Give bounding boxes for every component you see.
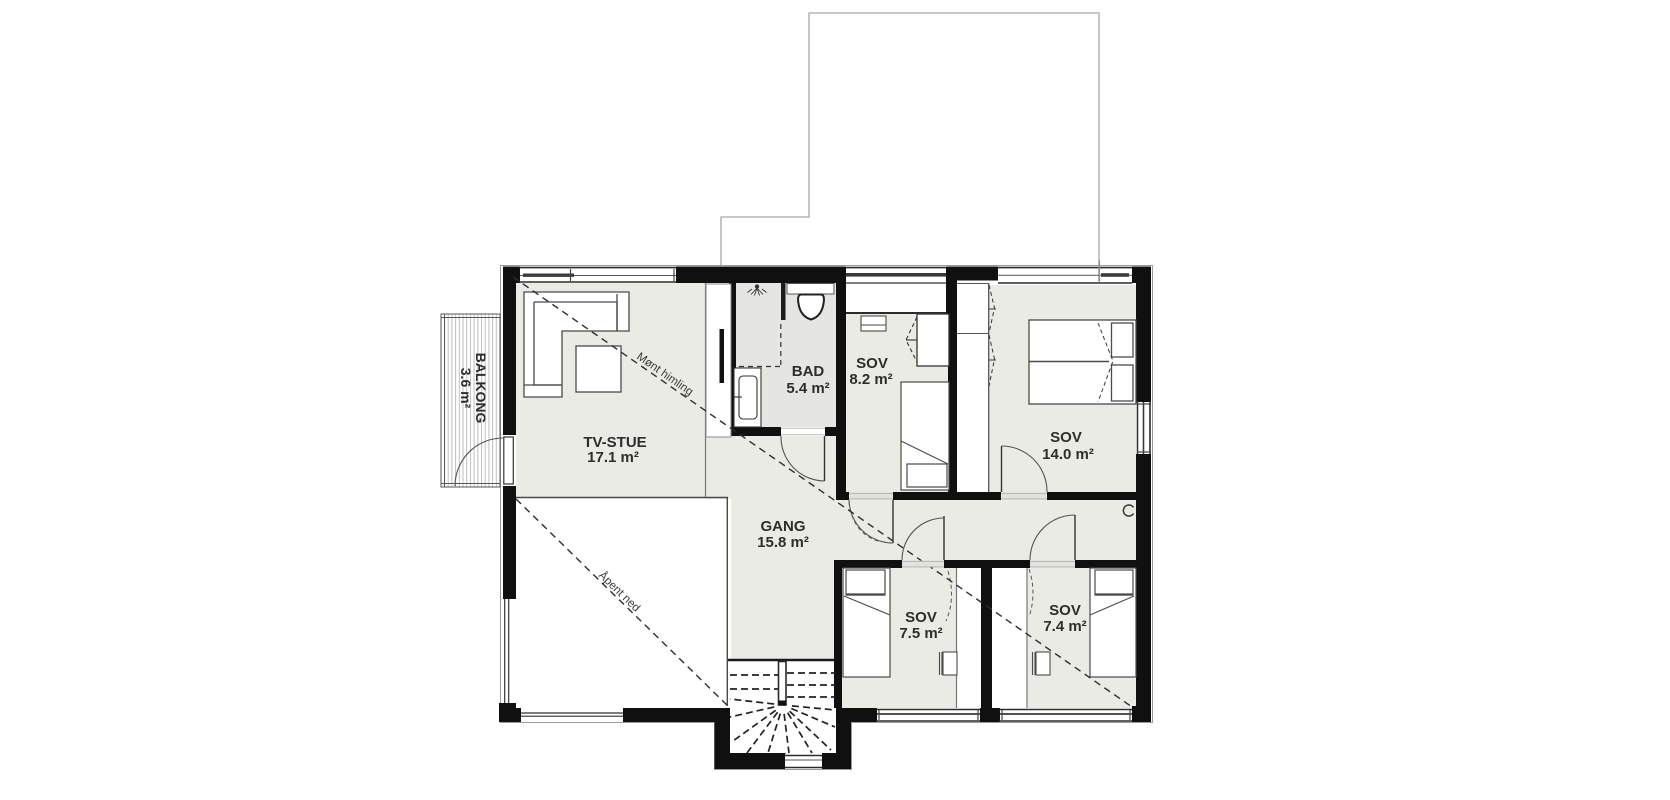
svg-text:SOV: SOV — [905, 609, 937, 626]
svg-text:15.8 m²: 15.8 m² — [757, 534, 809, 551]
svg-text:5.4 m²: 5.4 m² — [786, 380, 829, 397]
svg-text:BALKONG: BALKONG — [473, 353, 489, 424]
svg-text:SOV: SOV — [1049, 602, 1081, 619]
svg-text:8.2 m²: 8.2 m² — [849, 371, 892, 388]
svg-text:14.0 m²: 14.0 m² — [1042, 446, 1094, 463]
svg-text:7.4 m²: 7.4 m² — [1043, 618, 1086, 635]
svg-text:BAD: BAD — [792, 363, 825, 380]
svg-text:3.6 m²: 3.6 m² — [458, 368, 474, 409]
svg-text:7.5 m²: 7.5 m² — [899, 625, 942, 642]
svg-text:SOV: SOV — [856, 355, 888, 372]
svg-text:SOV: SOV — [1050, 429, 1082, 446]
svg-text:Åpent ned: Åpent ned — [596, 569, 643, 615]
svg-text:17.1 m²: 17.1 m² — [587, 449, 639, 466]
svg-text:GANG: GANG — [761, 518, 806, 535]
